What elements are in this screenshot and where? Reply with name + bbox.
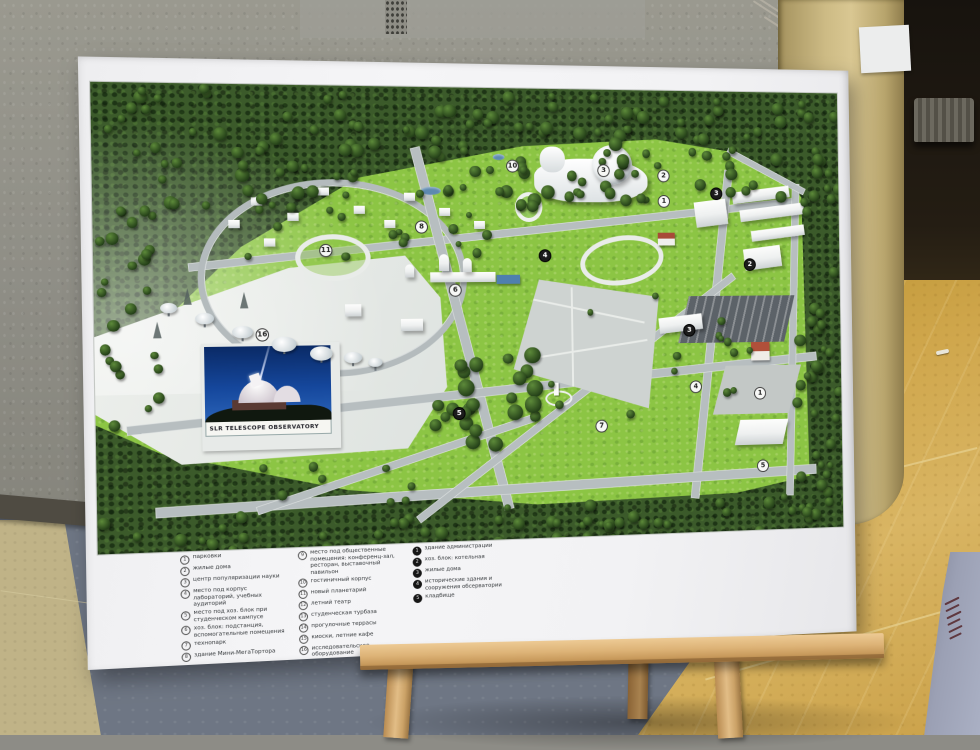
legend-label: кладбище — [425, 592, 455, 600]
legend-number-badge: 4 — [413, 579, 422, 588]
map-marker: 11 — [319, 244, 332, 257]
legend-column: 1здание администрации2хоз. блок: котельн… — [412, 542, 516, 647]
legend-number-badge: 2 — [180, 566, 190, 576]
legend-number-badge: 1 — [412, 546, 421, 555]
wall-upper-panel — [300, 0, 645, 38]
radiator — [914, 98, 974, 142]
campus-map: SLR TELESCOPE OBSERVATORY 10323124653145… — [90, 82, 843, 555]
legend-label: прогулочные террасы — [311, 620, 376, 630]
easel-right-leg — [714, 655, 743, 738]
observatory-masterplan-poster: SLR TELESCOPE OBSERVATORY 10323124653145… — [78, 56, 857, 670]
legend-label: здание администрации — [424, 543, 492, 552]
legend-number-badge: 5 — [413, 594, 422, 603]
map-marker: 3 — [710, 187, 722, 200]
legend-label: летний театр — [311, 599, 351, 607]
legend-number-badge: 6 — [181, 626, 191, 636]
map-marker: 4 — [690, 380, 702, 393]
legend-number-badge: 7 — [181, 641, 191, 651]
tree — [609, 534, 618, 543]
map-marker: 5 — [757, 459, 769, 472]
legend-number-badge: 11 — [298, 590, 307, 600]
panel-text-line — [949, 632, 962, 639]
map-marker: 2 — [744, 258, 756, 271]
map-marker: 16 — [255, 328, 269, 342]
legend-number-badge: 16 — [299, 646, 308, 656]
legend-label: хоз. блок: котельная — [425, 554, 485, 563]
map-marker: 4 — [539, 249, 552, 262]
legend-label: центр популяризации науки — [193, 573, 280, 583]
legend-number-badge: 5 — [181, 611, 191, 621]
map-marker: 6 — [449, 284, 462, 297]
legend-label: жилые дома — [425, 566, 461, 574]
legend-number-badge: 13 — [299, 612, 308, 622]
map-marker: 5 — [453, 407, 466, 420]
legend-number-badge: 10 — [298, 579, 307, 589]
legend-label: гостиничный корпус — [311, 576, 372, 585]
legend-item: 4место под корпус лабораторий, учебных а… — [180, 584, 289, 609]
legend-number-badge: 15 — [299, 635, 308, 645]
map-marker: 7 — [595, 420, 608, 433]
legend-number-badge: 3 — [413, 568, 422, 577]
legend-number-badge: 2 — [413, 557, 422, 566]
legend-label: студенческая турбаза — [311, 609, 377, 619]
map-marker: 10 — [506, 160, 519, 173]
white-patch-on-column — [859, 25, 911, 74]
map-marker: 3 — [683, 324, 695, 337]
easel-rear-leg — [627, 655, 648, 719]
map-marker: 3 — [597, 164, 610, 177]
legend-number-badge: 8 — [182, 653, 192, 663]
legend-number-badge: 14 — [299, 624, 308, 634]
legend-number-badge: 4 — [180, 589, 190, 599]
legend-label: новый планетарий — [311, 587, 367, 596]
panel-text-line — [947, 618, 960, 626]
map-marker: 1 — [658, 195, 670, 208]
legend-number-badge: 1 — [180, 555, 190, 565]
legend-column: 9место под общественные помещения: конфе… — [298, 546, 405, 652]
wall-vent-grille — [385, 0, 407, 34]
legend-label: парковки — [193, 553, 222, 561]
legend-column: 1парковки2жилые дома3центр популяризации… — [180, 550, 290, 658]
legend-label: жилые дома — [193, 564, 231, 572]
legend-number-badge: 3 — [180, 577, 190, 587]
legend-label: киоски, летние кафе — [311, 631, 373, 641]
map-marker: 1 — [754, 387, 766, 400]
legend-number-badge: 9 — [298, 550, 307, 560]
legend-label: технопарк — [194, 639, 226, 647]
map-marker: 2 — [657, 170, 669, 183]
legend-item: 9место под общественные помещения: конфе… — [298, 546, 404, 577]
tree — [838, 212, 843, 222]
legend-label: место под корпус лабораторий, учебных ау… — [193, 584, 289, 608]
map-markers-layer: 10323124653145716118 — [90, 82, 843, 555]
map-marker: 8 — [415, 220, 428, 233]
legend-label: место под общественные помещения: конфер… — [310, 546, 404, 576]
legend-number-badge: 12 — [299, 601, 308, 611]
